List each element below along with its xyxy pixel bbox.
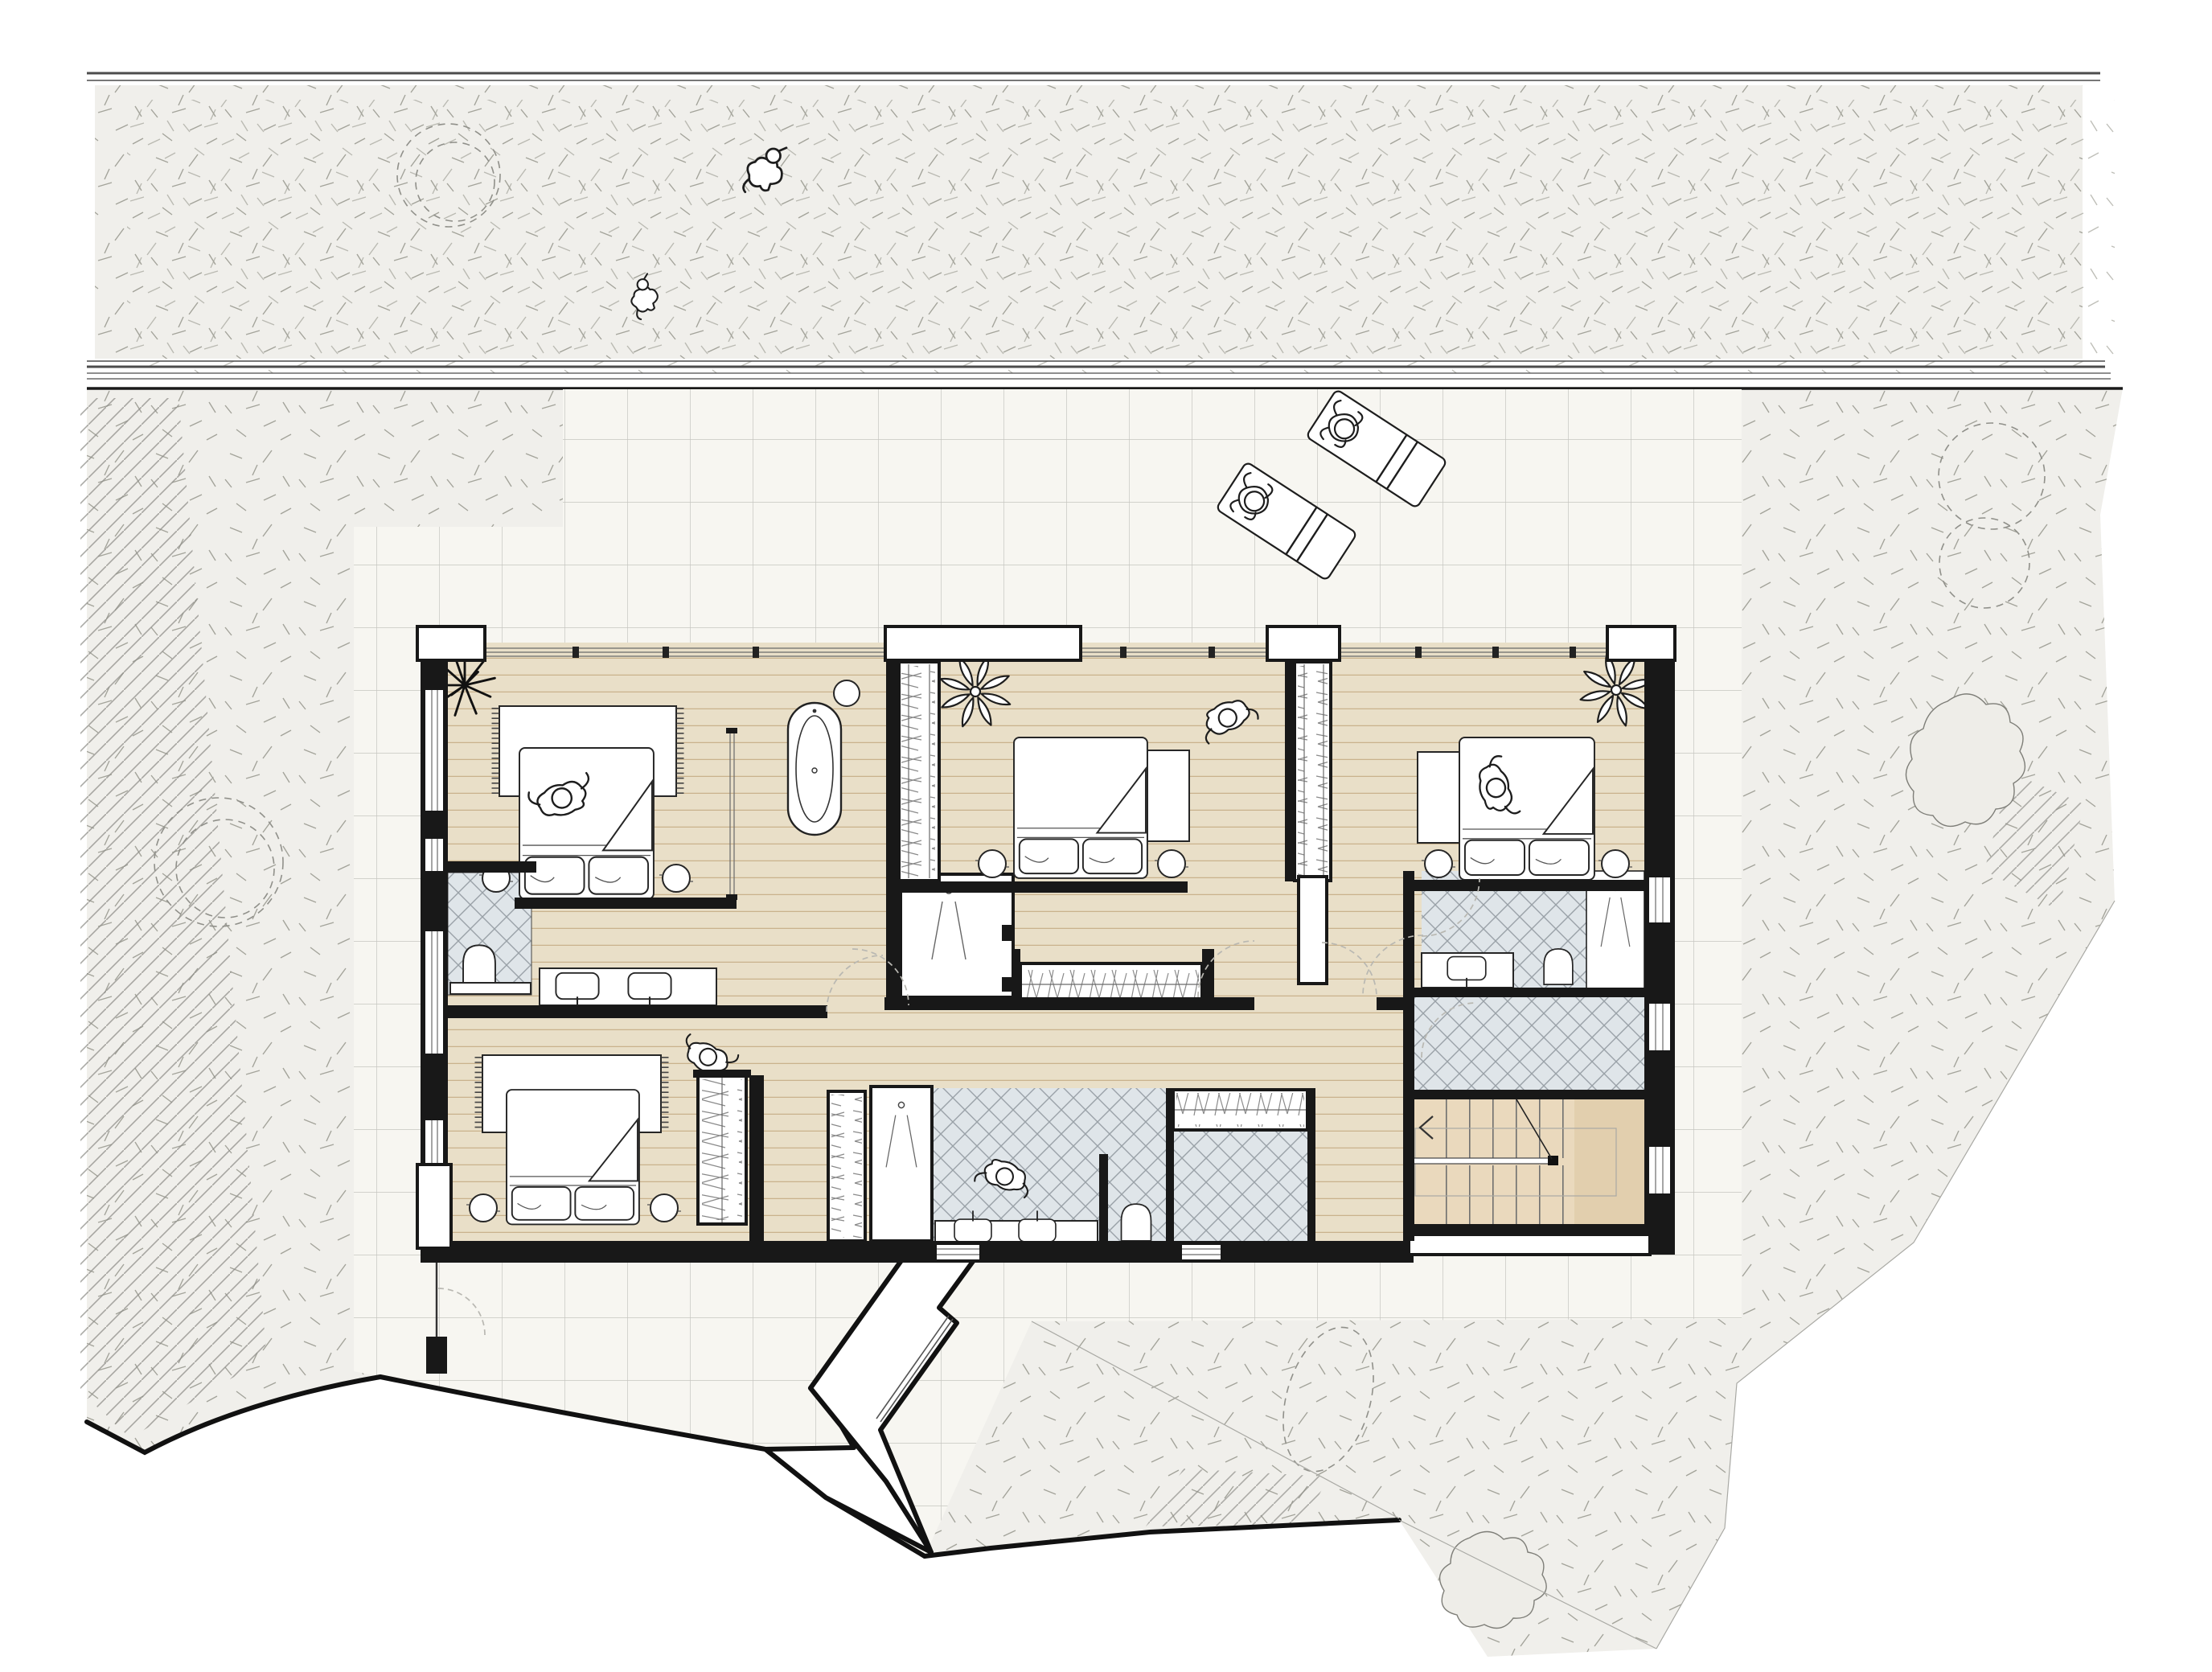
house xyxy=(417,626,1675,1263)
wardrobe-bedroom2 xyxy=(698,1075,746,1224)
toilet xyxy=(1122,1204,1151,1241)
wall-pier xyxy=(417,626,485,660)
toilet xyxy=(463,945,495,984)
wall-bottom xyxy=(421,1241,1414,1263)
stair-handrail xyxy=(1414,1158,1553,1164)
wardrobe-lower-central xyxy=(828,1091,865,1241)
terrace-ledge xyxy=(1409,1234,1650,1255)
closet-column xyxy=(1299,877,1327,984)
bed xyxy=(1459,737,1594,880)
bathtub xyxy=(788,703,841,835)
wall-pier xyxy=(885,626,1081,660)
gate-post xyxy=(426,1337,447,1374)
wall-pier xyxy=(1607,626,1675,660)
wall-pier xyxy=(1267,626,1340,660)
floor-plan-page xyxy=(0,0,2212,1672)
bed xyxy=(1014,737,1147,878)
wardrobe-right-bedroom xyxy=(1295,662,1331,881)
road-band xyxy=(87,73,2115,379)
duvet xyxy=(1418,752,1459,843)
duvet xyxy=(1147,750,1189,841)
wall-pier xyxy=(417,1165,451,1248)
bathroom-lower-right-floor xyxy=(1414,997,1644,1090)
toilet xyxy=(1544,949,1573,984)
stool xyxy=(834,680,860,706)
wc-partition xyxy=(1099,1154,1108,1241)
bed xyxy=(507,1090,639,1224)
laundry-closet-floor xyxy=(1173,1130,1307,1243)
staircase xyxy=(1414,1098,1644,1224)
floor-plan-canvas xyxy=(0,0,2212,1672)
right-ensuite xyxy=(1422,949,1573,989)
shower-room-lower xyxy=(871,1087,932,1241)
shower-tray xyxy=(450,983,531,994)
wardrobe-middle-bedroom xyxy=(897,662,939,881)
bed xyxy=(519,748,654,899)
